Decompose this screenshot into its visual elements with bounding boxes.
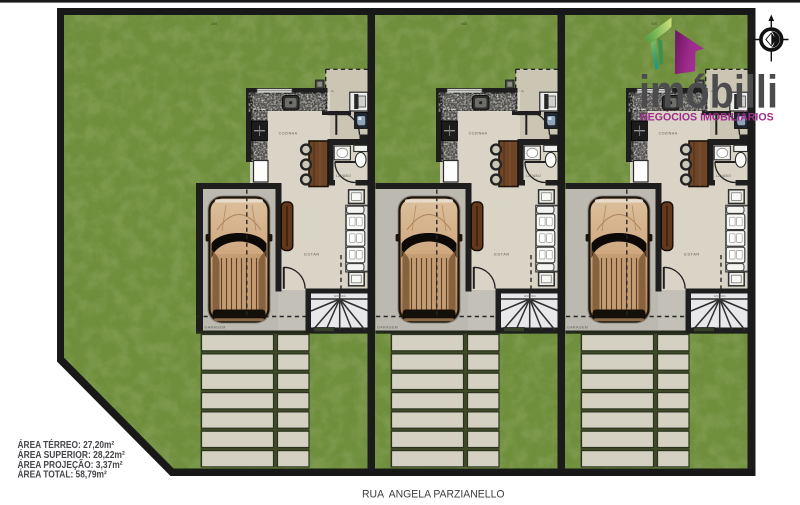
svg-text:NEGÓCIOS IMOBILIÁRIOS: NEGÓCIOS IMOBILIÁRIOS [640, 110, 774, 123]
svg-text:COZINHA: COZINHA [659, 132, 678, 136]
svg-text:ESCADA: ESCADA [714, 294, 726, 298]
svg-text:LAVABO: LAVABO [526, 174, 541, 178]
svg-text:ESTAR: ESTAR [304, 252, 320, 257]
svg-text:tq: tq [331, 89, 334, 93]
svg-text:ÁREA TOTAL: 58,79m²: ÁREA TOTAL: 58,79m² [18, 468, 108, 481]
svg-text:ESCADA: ESCADA [524, 294, 536, 298]
svg-text:GARAGEM: GARAGEM [205, 325, 226, 329]
svg-text:LAVABO: LAVABO [716, 174, 731, 178]
svg-text:4.00: 4.00 [651, 22, 657, 26]
svg-text:GARAGEM: GARAGEM [377, 325, 398, 329]
svg-text:4.00: 4.00 [461, 22, 467, 26]
svg-text:LAVABO: LAVABO [336, 174, 351, 178]
svg-text:ESCADA: ESCADA [334, 294, 346, 298]
svg-text:ESTAR: ESTAR [494, 252, 510, 257]
svg-text:ÁREA TÉRREO: 27,20m²: ÁREA TÉRREO: 27,20m² [18, 438, 115, 451]
svg-text:tq: tq [521, 89, 524, 93]
svg-text:COZINHA: COZINHA [469, 132, 488, 136]
svg-text:GARAGEM: GARAGEM [567, 325, 588, 329]
svg-text:imóbilli: imóbilli [639, 66, 778, 118]
svg-text:ESTAR: ESTAR [684, 252, 700, 257]
svg-text:RUA ANGELA PARZIANELLO: RUA ANGELA PARZIANELLO [362, 489, 505, 501]
svg-text:4.00: 4.00 [211, 22, 217, 26]
svg-text:COZINHA: COZINHA [279, 132, 298, 136]
